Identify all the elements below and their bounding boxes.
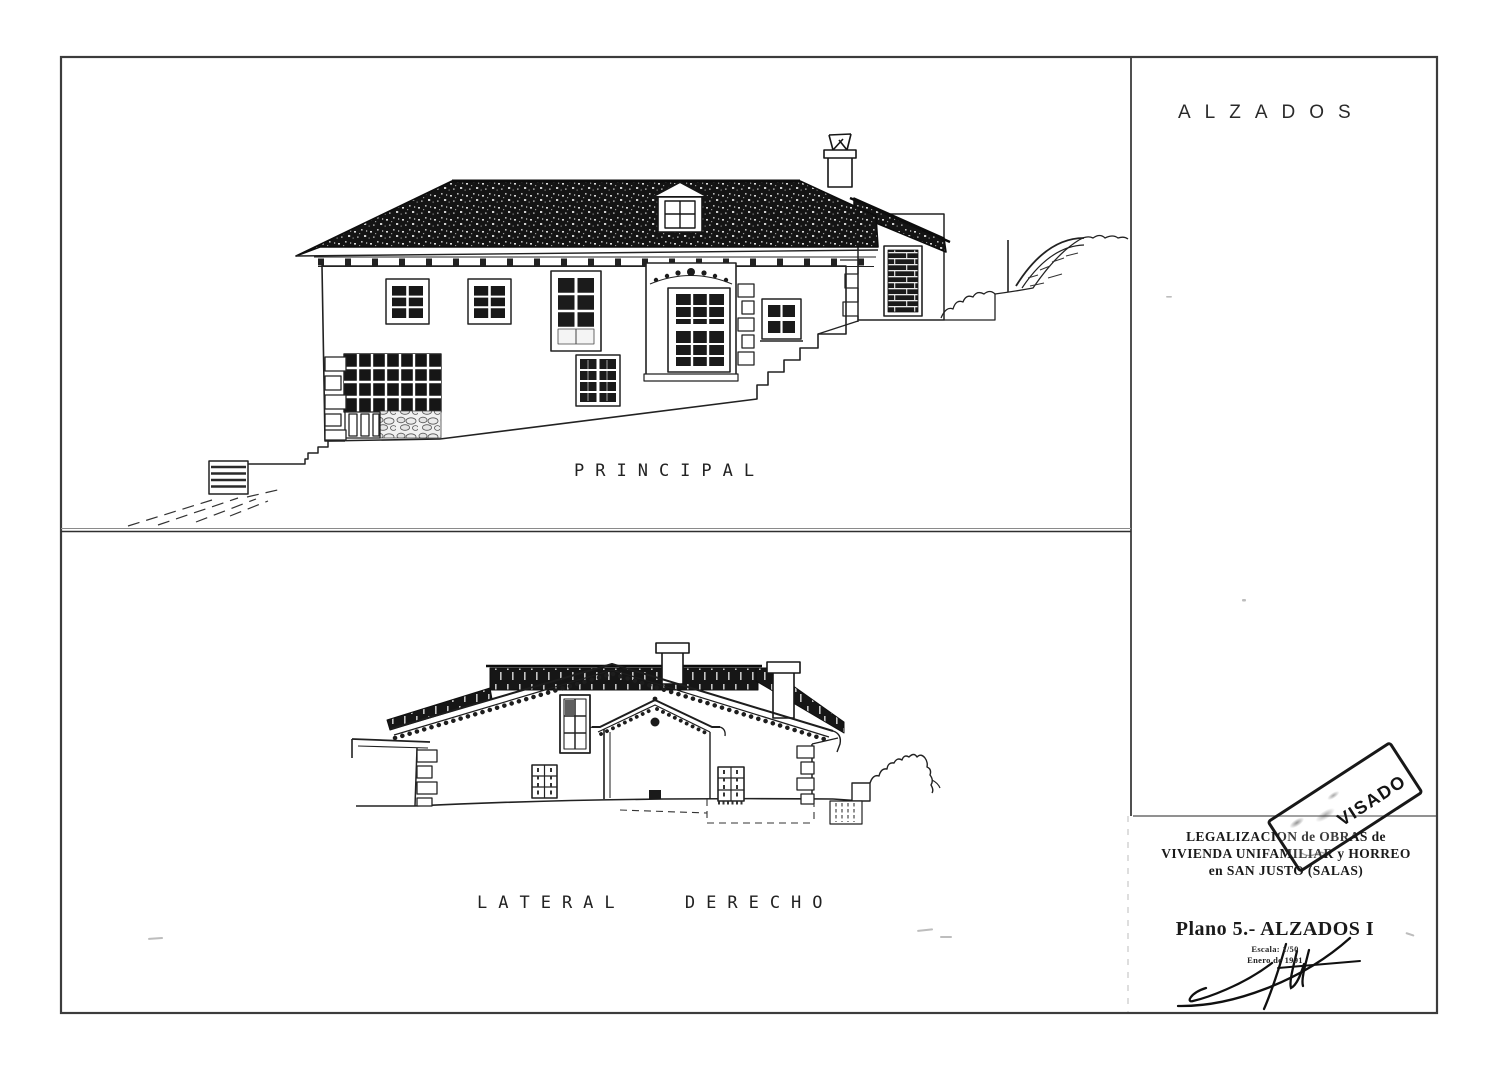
porch-round-vent (651, 718, 660, 727)
principal-window-2 (468, 279, 511, 324)
date-note: Enero de 1991 (1140, 955, 1410, 965)
entrance-quoins (738, 284, 754, 365)
basement-door-slats (345, 412, 380, 438)
lateral-window-right (718, 767, 744, 803)
scale-note: Escala: 1/50 (1140, 944, 1410, 954)
principal-window-1 (386, 279, 429, 324)
principal-tall-window (551, 271, 601, 351)
sheet-number-label: Plano 5.- ALZADOS I (1140, 918, 1410, 941)
lateral-elevation-label: LATERAL DERECHO (477, 893, 834, 913)
stone-rubble-base (380, 411, 441, 438)
project-line-3: en SAN JUSTO (SALAS) (1138, 862, 1434, 879)
plan-sheet: ALZADOS PRINCIPAL LATERAL DERECHO LEGALI… (0, 0, 1499, 1071)
principal-small-window (760, 299, 803, 341)
entrance-threshold (644, 374, 738, 381)
lateral-window-left (532, 765, 557, 798)
principal-elevation-label: PRINCIPAL (574, 461, 765, 481)
porch-floor-mark (649, 790, 661, 799)
lateral-tall-window (560, 695, 590, 753)
sheet-title: ALZADOS (1178, 102, 1365, 124)
principal-lower-shutter-window (576, 355, 620, 406)
